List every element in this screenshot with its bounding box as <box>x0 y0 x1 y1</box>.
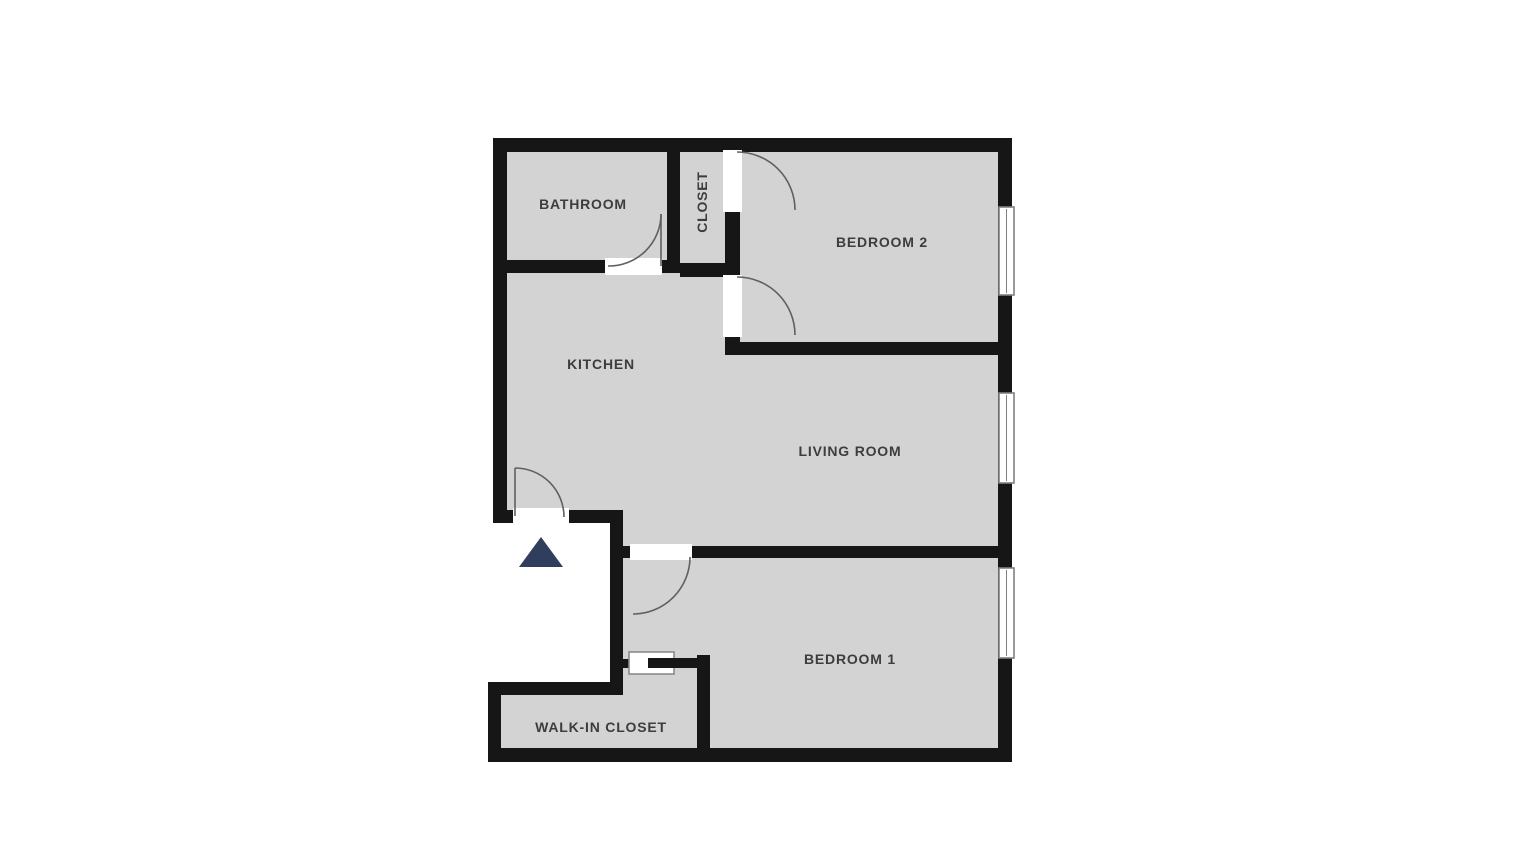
bedroom2-window <box>999 207 1014 295</box>
room-label-bedroom1: BEDROOM 1 <box>804 651 896 667</box>
apartment-floor <box>488 138 1012 762</box>
entrance-marker-icon <box>519 537 563 567</box>
living-room-window <box>999 393 1014 483</box>
room-label-kitchen: KITCHEN <box>567 356 635 372</box>
room-label-living-room: LIVING ROOM <box>799 443 902 459</box>
floor-plan: BATHROOM CLOSET BEDROOM 2 KITCHEN LIVING… <box>0 0 1520 855</box>
bedroom1-window <box>999 568 1014 658</box>
room-label-bedroom2: BEDROOM 2 <box>836 234 928 250</box>
windows <box>999 207 1014 658</box>
floor-plan-page: BATHROOM CLOSET BEDROOM 2 KITCHEN LIVING… <box>0 0 1520 855</box>
room-label-closet: CLOSET <box>694 171 710 233</box>
room-label-bathroom: BATHROOM <box>539 196 627 212</box>
room-label-walk-in-closet: WALK-IN CLOSET <box>535 719 667 735</box>
